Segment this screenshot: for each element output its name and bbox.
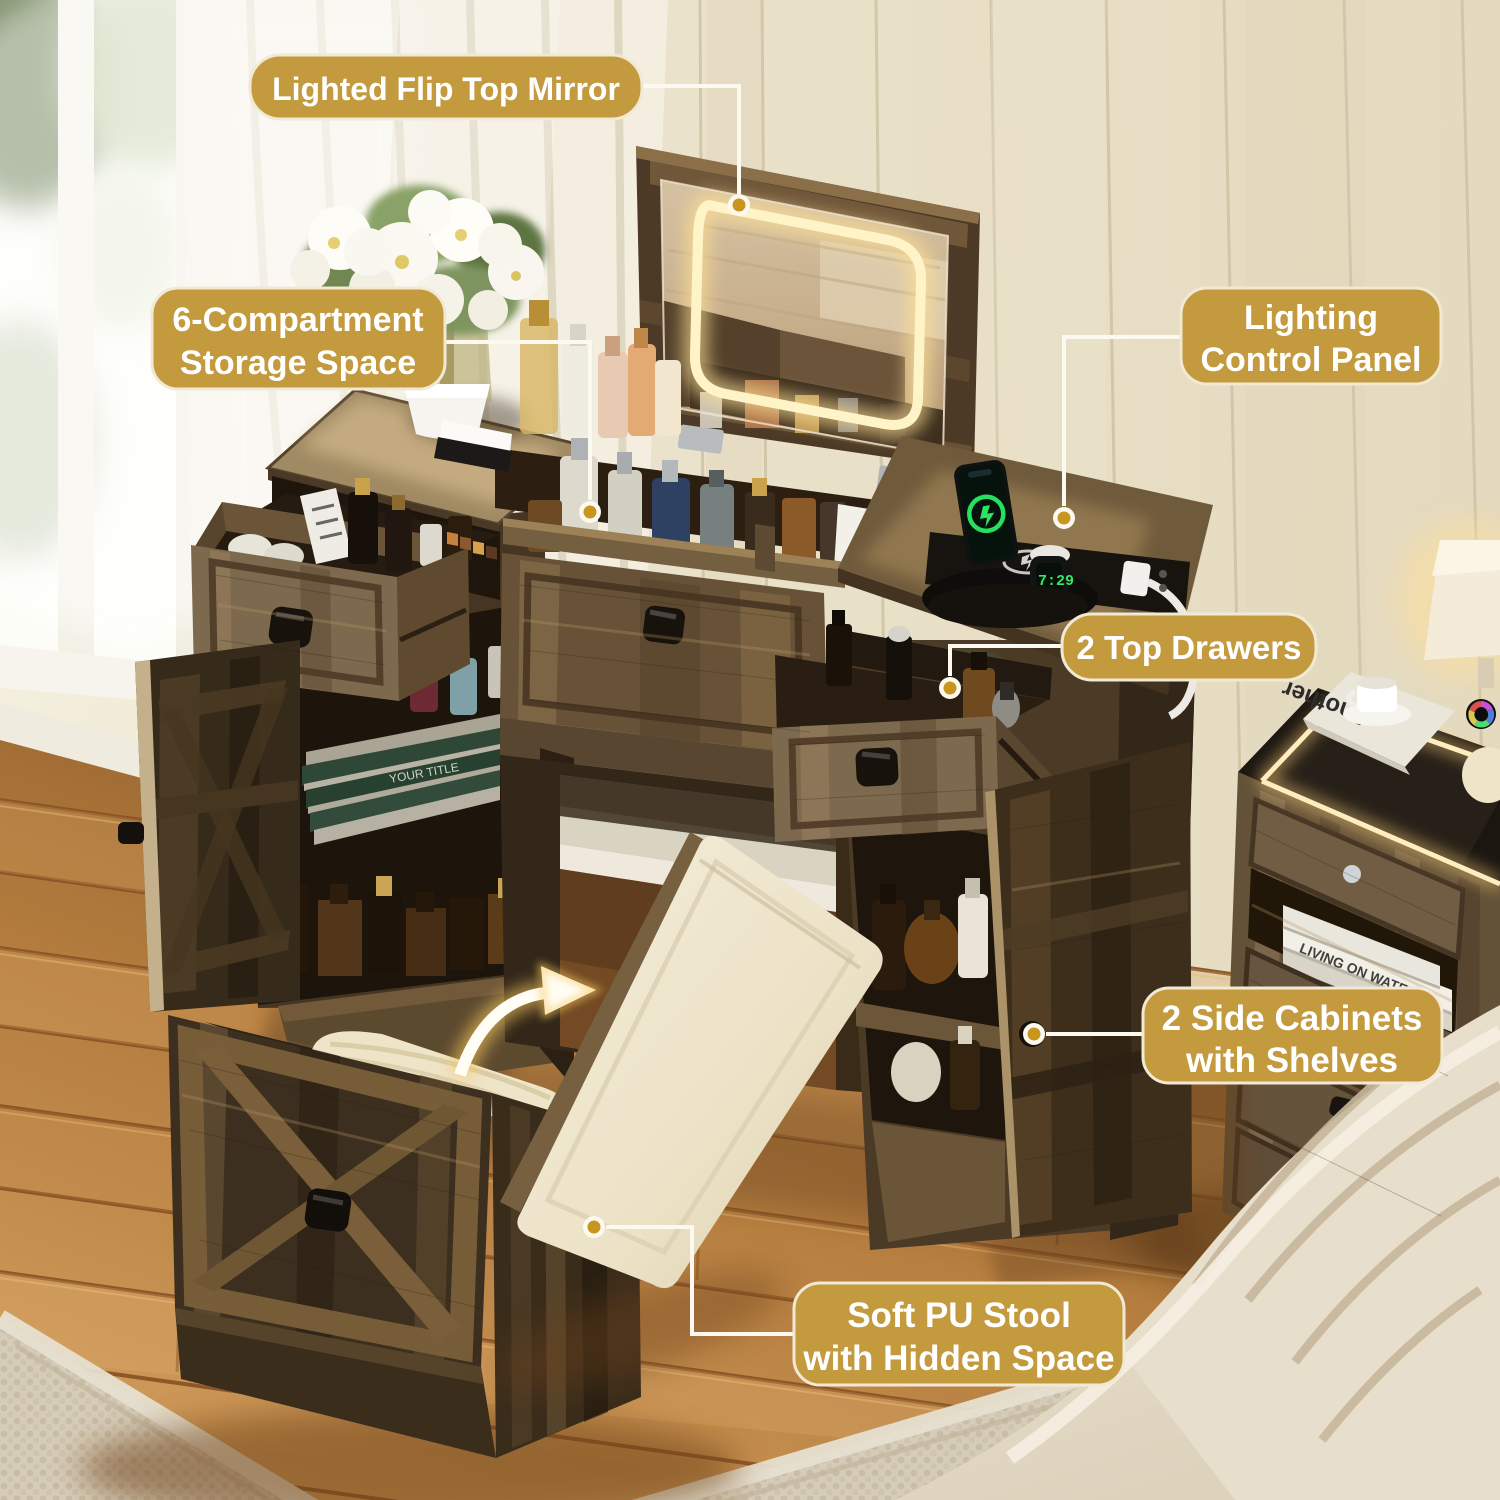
- svg-text:Soft PU Stool: Soft PU Stool: [847, 1296, 1071, 1335]
- svg-text:Control Panel: Control Panel: [1200, 341, 1421, 379]
- svg-text:2 Side Cabinets: 2 Side Cabinets: [1162, 999, 1423, 1038]
- svg-text:Lighted Flip Top Mirror: Lighted Flip Top Mirror: [272, 71, 620, 107]
- svg-text:with Hidden Space: with Hidden Space: [802, 1339, 1114, 1378]
- svg-text:2 Top Drawers: 2 Top Drawers: [1077, 629, 1302, 666]
- svg-text:Storage Space: Storage Space: [180, 344, 416, 382]
- svg-text:6-Compartment: 6-Compartment: [172, 301, 423, 339]
- svg-text:with Shelves: with Shelves: [1185, 1041, 1398, 1080]
- svg-text:Lighting: Lighting: [1244, 299, 1378, 337]
